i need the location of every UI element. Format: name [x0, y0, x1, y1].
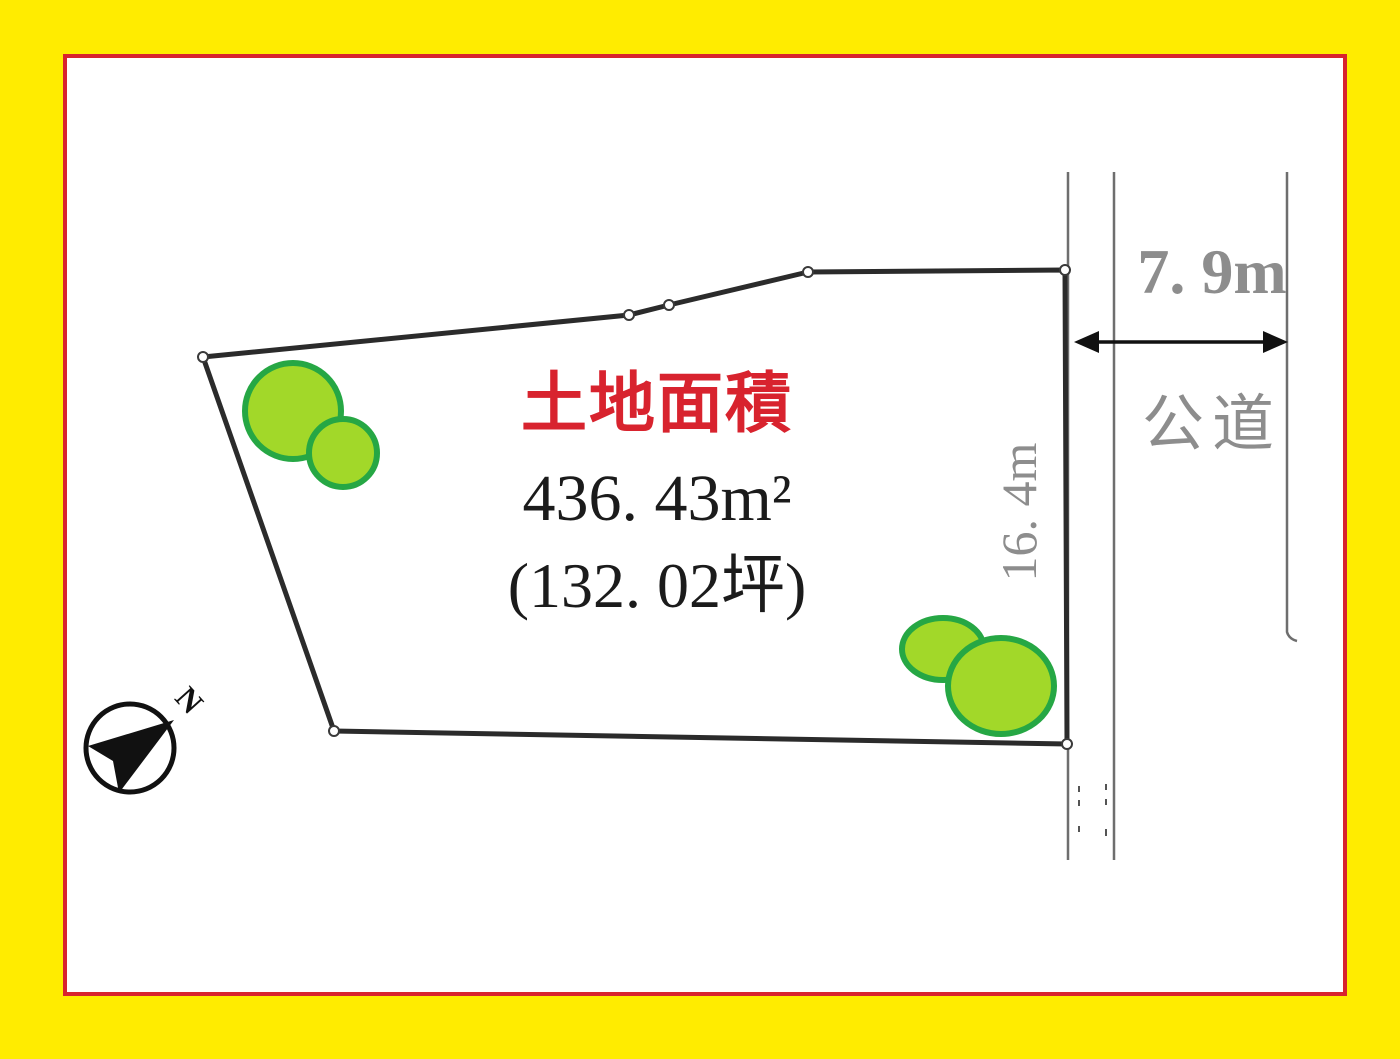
frontage-arrow-right-head [1263, 331, 1288, 353]
land-plot-diagram: 土地面積 436. 43m² (132. 02坪) 7. 9m 公道 16. 4… [0, 0, 1400, 1059]
area-value-sqm: 436. 43m² [397, 466, 917, 532]
tree-icon [309, 419, 377, 487]
compass-icon [86, 704, 174, 793]
vertex-marker [624, 310, 634, 320]
area-value-tsubo: (132. 02坪) [397, 554, 917, 618]
vertex-marker [803, 267, 813, 277]
vertex-marker [198, 352, 208, 362]
side-length-label: 16. 4m [994, 422, 1050, 602]
frontage-arrow-left-head [1074, 331, 1099, 353]
road-width-label: 7. 9m [1092, 240, 1332, 304]
vertex-marker [664, 300, 674, 310]
area-title: 土地面積 [397, 372, 917, 438]
tree-icon [948, 638, 1054, 734]
vertex-marker [1060, 265, 1070, 275]
road-name-label: 公道 [1092, 394, 1332, 456]
vertex-marker [1062, 739, 1072, 749]
vertex-marker [329, 726, 339, 736]
